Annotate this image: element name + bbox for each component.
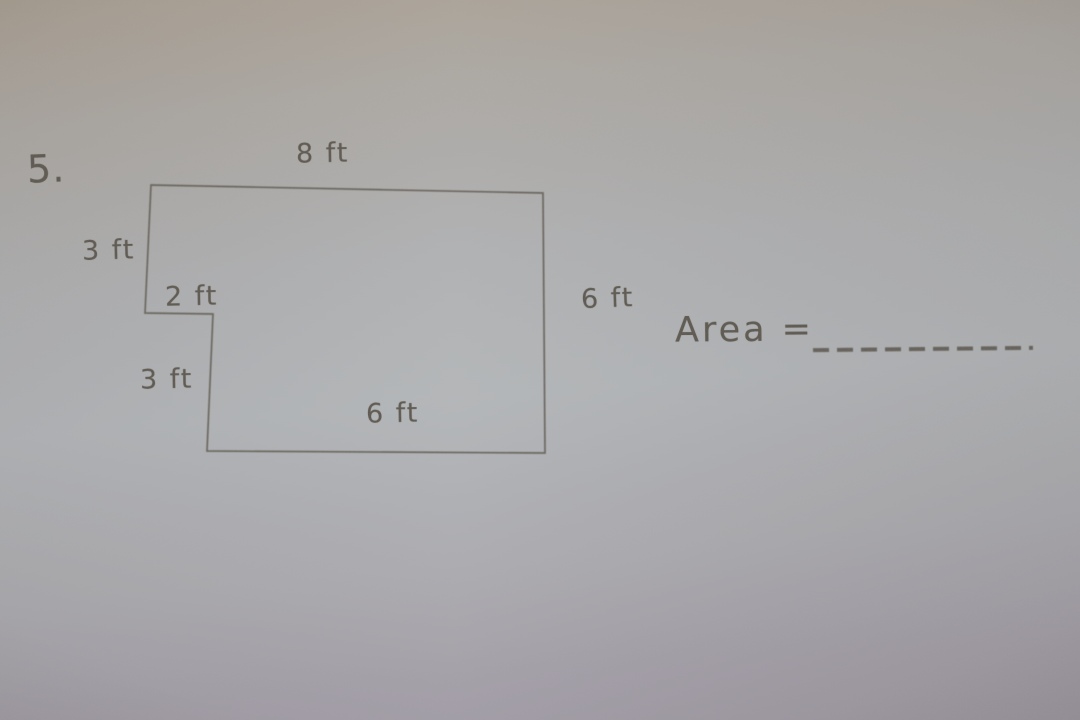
dimension-label-left-upper: 3 ft [82,234,136,266]
area-prompt: Area = [675,309,814,350]
dimension-label-left-lower: 3 ft [140,364,194,396]
dimension-label-right: 6 ft [580,282,634,315]
l-shape-polygon [145,185,545,453]
dimension-label-bottom: 6 ft [366,398,420,430]
dimension-label-top: 8 ft [296,138,350,170]
figure-outline [0,0,1080,720]
problem-number: 5. [26,146,66,191]
dimension-label-notch: 2 ft [165,281,219,313]
worksheet-photo: 5. 8 ft 3 ft 2 ft 3 ft 6 ft 6 ft Area = [0,0,1080,720]
